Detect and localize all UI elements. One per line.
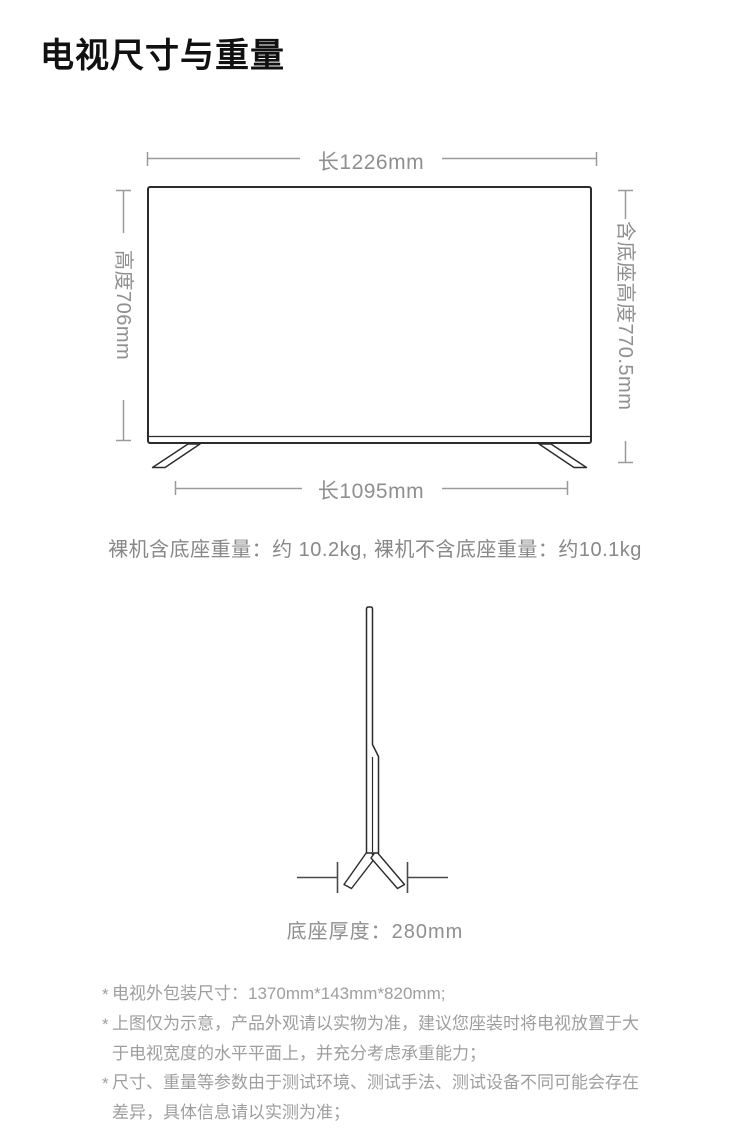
dim-label-base-length: 长1095mm <box>318 475 424 505</box>
footnotes: *电视外包装尺寸：1370mm*143mm*820mm; *上图仅为示意，产品外… <box>102 979 644 1127</box>
dim-label-height: 高度706mm <box>112 250 134 360</box>
footnote-marker: * <box>102 980 112 1009</box>
side-left-leg <box>344 849 375 889</box>
footnote-text: 上图仅为示意，产品外观请以实物为准，建议您座装时将电视放置于大于电视宽度的水平平… <box>112 1014 639 1063</box>
tv-left-foot <box>153 444 201 468</box>
tv-screen-outline <box>148 187 591 443</box>
footnote-text: 尺寸、重量等参数由于测试环境、测试手法、测试设备不同可能会存在差异，具体信息请以… <box>112 1073 639 1122</box>
footnote-text: 电视外包装尺寸：1370mm*143mm*820mm; <box>112 984 445 1003</box>
side-depth-markers <box>297 862 448 893</box>
footnote-marker: * <box>102 1069 112 1098</box>
tv-right-foot <box>539 444 587 468</box>
side-panel-outline <box>367 607 379 853</box>
footnote-item: *上图仅为示意，产品外观请以实物为准，建议您座装时将电视放置于大于电视宽度的水平… <box>102 1009 644 1068</box>
tv-side-view <box>344 607 405 889</box>
product-spec-page: 电视尺寸与重量 <box>0 0 750 1137</box>
footnote-item: *尺寸、重量等参数由于测试环境、测试手法、测试设备不同可能会存在差异，具体信息请… <box>102 1068 644 1127</box>
footnote-marker: * <box>102 1010 112 1039</box>
page-title: 电视尺寸与重量 <box>40 28 285 77</box>
dim-label-length: 长1226mm <box>318 146 424 176</box>
footnote-item: *电视外包装尺寸：1370mm*143mm*820mm; <box>102 979 644 1009</box>
dim-label-height-with-base: 含底座高度770.5mm <box>614 221 636 410</box>
front-view-dimension-lines <box>116 152 633 495</box>
base-thickness-note: 底座厚度：280mm <box>0 915 750 944</box>
side-right-leg <box>371 851 405 889</box>
weight-note: 裸机含底座重量：约 10.2kg, 裸机不含底座重量：约10.1kg <box>0 533 750 562</box>
tv-front-view <box>148 187 591 468</box>
